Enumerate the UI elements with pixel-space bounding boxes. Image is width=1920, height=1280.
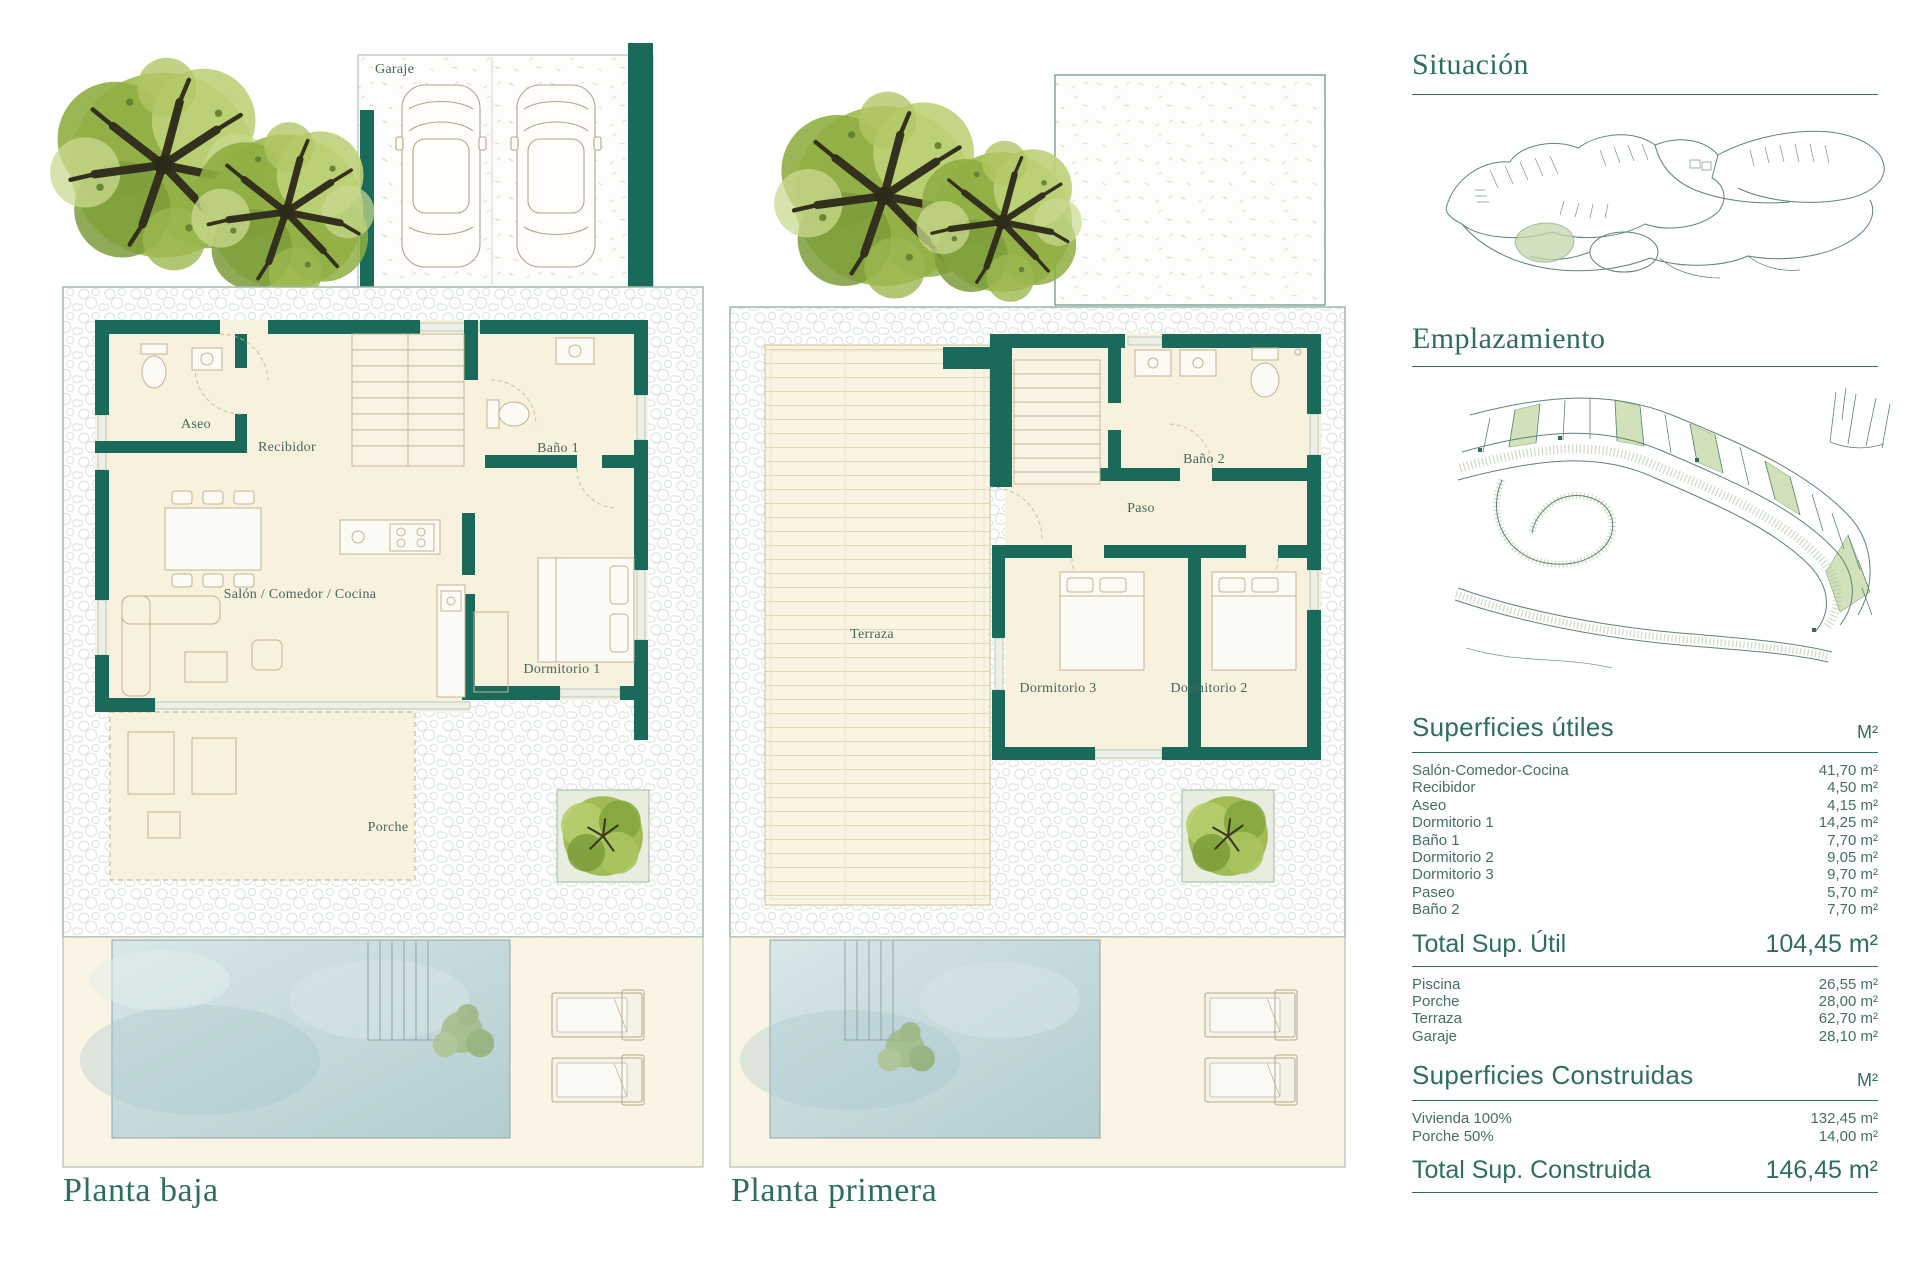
superficies-utiles-rows: Salón-Comedor-Cocina 41,70 m² Recibidor … [1412,762,1878,919]
row-value: 4,50 m² [1827,779,1878,796]
row-value: 4,15 m² [1827,797,1878,814]
section-title: Superficies útiles [1412,712,1614,743]
unit-label: M² [1857,1070,1878,1091]
table-row: Dormitorio 1 14,25 m² [1412,814,1878,831]
superficies-construidas-header: Superficies Construidas M² [1412,1060,1878,1101]
room-label-dormitorio2: Dormitorio 2 [1170,681,1247,697]
garage-drawing [358,43,653,287]
surfaces-tables: Superficies útiles M² Salón-Comedor-Coci… [1412,712,1878,1193]
table-row: Porche 50% 14,00 m² [1412,1128,1878,1145]
row-value: 14,25 m² [1819,814,1878,831]
table-row: Garaje 28,10 m² [1412,1028,1878,1045]
room-label-dormitorio1: Dormitorio 1 [523,662,600,678]
first-floor-title: Planta primera [731,1172,937,1210]
total-util-row: Total Sup. Útil 104,45 m² [1412,930,1878,967]
row-value: 9,70 m² [1827,866,1878,883]
situacion-rule [1412,94,1878,95]
room-label-garaje: Garaje [375,62,414,78]
room-label-paso: Paso [1127,501,1155,517]
room-label-terraza: Terraza [850,627,894,643]
first-pool [730,937,1345,1167]
row-value: 62,70 m² [1819,1010,1878,1027]
row-label: Terraza [1412,1010,1462,1027]
row-label: Recibidor [1412,779,1475,796]
emplazamiento-title: Emplazamiento [1412,322,1878,356]
unit-label: M² [1857,722,1878,743]
row-label: Baño 2 [1412,901,1460,918]
row-label: Paseo [1412,884,1455,901]
table-row: Piscina 26,55 m² [1412,976,1878,993]
ground-floor-title: Planta baja [63,1172,219,1210]
row-label: Vivienda 100% [1412,1110,1512,1127]
situacion-title: Situación [1412,48,1878,82]
table-row: Recibidor 4,50 m² [1412,779,1878,796]
row-label: Dormitorio 2 [1412,849,1494,866]
total-construida-row: Total Sup. Construida 146,45 m² [1412,1156,1878,1193]
row-label: Dormitorio 3 [1412,866,1494,883]
row-label: Dormitorio 1 [1412,814,1494,831]
garden-trees-first [774,92,1082,302]
row-value: 132,45 m² [1810,1110,1878,1127]
table-row: Porche 28,00 m² [1412,993,1878,1010]
row-value: 28,10 m² [1819,1028,1878,1045]
room-label-porche: Porche [368,820,409,836]
total-value: 146,45 m² [1765,1156,1878,1185]
table-row: Baño 1 7,70 m² [1412,832,1878,849]
row-value: 5,70 m² [1827,884,1878,901]
first-floor-plan [730,75,1345,1167]
table-row: Aseo 4,15 m² [1412,797,1878,814]
row-label: Salón-Comedor-Cocina [1412,762,1569,779]
table-row: Salón-Comedor-Cocina 41,70 m² [1412,762,1878,779]
row-label: Aseo [1412,797,1446,814]
row-label: Baño 1 [1412,832,1460,849]
table-row: Dormitorio 2 9,05 m² [1412,849,1878,866]
table-row: Baño 2 7,70 m² [1412,901,1878,918]
ground-floor-plan [50,43,703,1167]
superficies-utiles-header: Superficies útiles M² [1412,712,1878,753]
table-row: Dormitorio 3 9,70 m² [1412,866,1878,883]
superficies-construidas-rows: Vivienda 100% 132,45 m² Porche 50% 14,00… [1412,1110,1878,1145]
row-label: Porche 50% [1412,1128,1494,1145]
row-value: 7,70 m² [1827,832,1878,849]
section-title: Superficies Construidas [1412,1060,1693,1091]
row-value: 14,00 m² [1819,1128,1878,1145]
emplazamiento-map [1455,388,1890,668]
row-value: 9,05 m² [1827,849,1878,866]
row-value: 41,70 m² [1819,762,1878,779]
room-label-dormitorio3: Dormitorio 3 [1019,681,1096,697]
situacion-map [1446,131,1884,278]
exterior-rows: Piscina 26,55 m² Porche 28,00 m² Terraza… [1412,976,1878,1046]
room-label-salon: Salón / Comedor / Cocina [224,587,377,603]
room-label-recibidor: Recibidor [258,440,316,456]
table-row: Vivienda 100% 132,45 m² [1412,1110,1878,1127]
total-label: Total Sup. Útil [1412,930,1566,959]
room-label-bano2: Baño 2 [1183,452,1225,468]
total-value: 104,45 m² [1765,930,1878,959]
row-value: 28,00 m² [1819,993,1878,1010]
table-row: Terraza 62,70 m² [1412,1010,1878,1027]
room-label-aseo: Aseo [181,417,211,433]
row-value: 7,70 m² [1827,901,1878,918]
row-label: Piscina [1412,976,1460,993]
row-value: 26,55 m² [1819,976,1878,993]
table-row: Paseo 5,70 m² [1412,884,1878,901]
room-label-bano1: Baño 1 [537,441,579,457]
emplazamiento-rule [1412,366,1878,367]
brochure-page: Garaje Aseo Recibidor Baño 1 Salón / Com… [0,0,1920,1280]
ground-pool [63,937,703,1167]
garage-roof-panel [1055,75,1325,305]
total-label: Total Sup. Construida [1412,1156,1651,1185]
row-label: Porche [1412,993,1460,1010]
garden-trees [50,58,374,301]
row-label: Garaje [1412,1028,1457,1045]
